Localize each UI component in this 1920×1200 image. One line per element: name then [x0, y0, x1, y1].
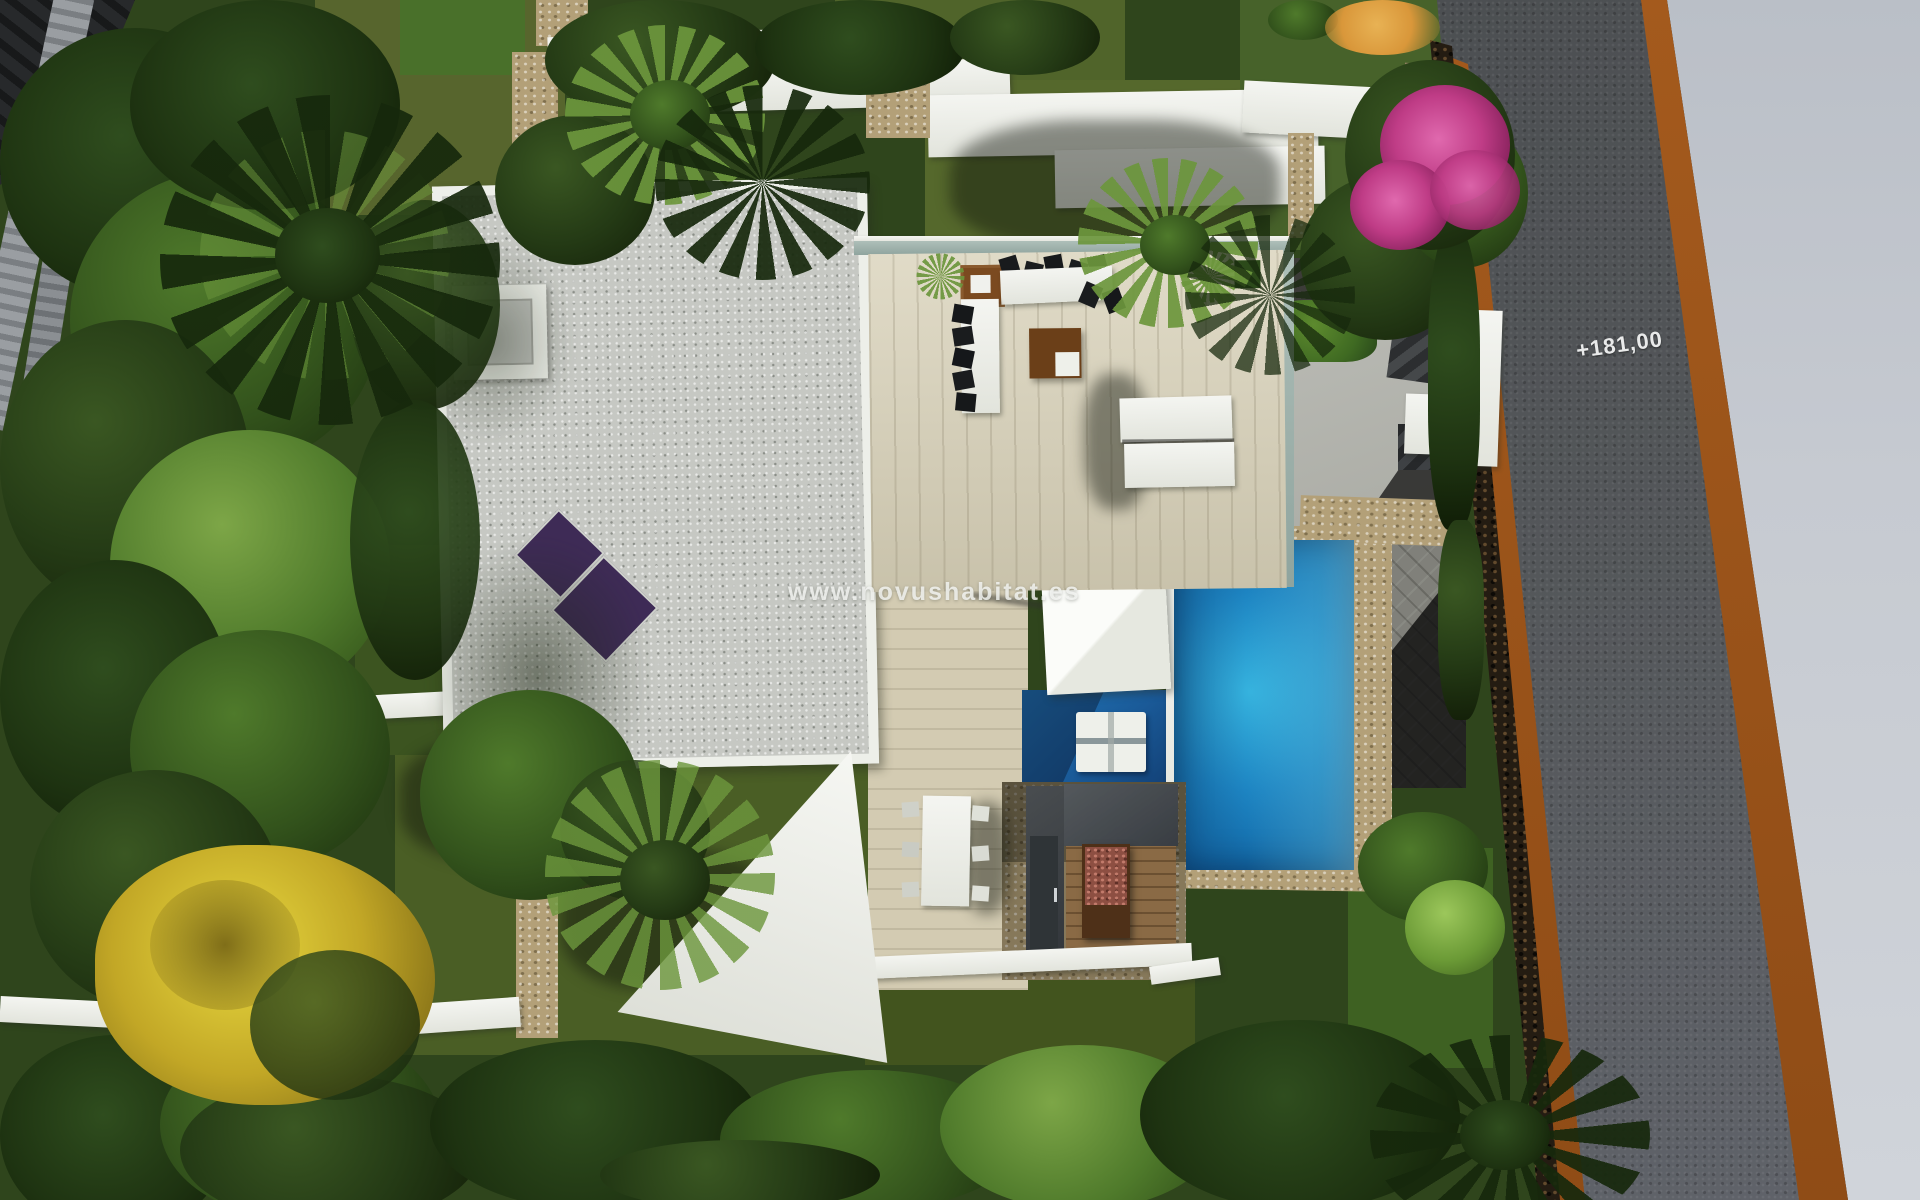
garden-palm-crown: [620, 840, 710, 920]
roadside-hedge: [1438, 520, 1484, 720]
pool-light-band: [1174, 540, 1354, 870]
yucca-plant: [655, 85, 870, 280]
palm-tree-crown: [1460, 1100, 1550, 1170]
orange-flowers: [1325, 0, 1440, 55]
palm-tree-crown: [275, 208, 380, 303]
tree: [250, 950, 420, 1100]
kitchen-counter: [1064, 784, 1178, 846]
dining-table: [921, 796, 971, 907]
lawn-top-left-bright: [400, 0, 525, 75]
bench-cushion: [955, 392, 977, 412]
bench-cushion: [952, 370, 975, 391]
tree: [755, 0, 965, 95]
bbq-top: [1085, 847, 1127, 905]
dining-chair: [971, 845, 989, 861]
dining-chair: [902, 882, 920, 898]
kitchen-door: [1030, 836, 1058, 952]
outdoor-sofa: [1124, 442, 1235, 488]
swimming-pool: [1174, 540, 1354, 870]
dining-chair: [971, 805, 989, 821]
bougainvillea-flowers: [1430, 150, 1520, 230]
outdoor-sofa: [1119, 395, 1232, 442]
lounger-gap: [1108, 712, 1114, 772]
fire-table-top: [970, 275, 990, 293]
coffee-table-tray: [1055, 352, 1079, 376]
dining-chair: [971, 885, 989, 901]
pool-towel-loungers: [1076, 712, 1146, 772]
bench-cushion: [952, 326, 974, 347]
potted-palm: [916, 253, 964, 300]
tree: [350, 400, 480, 680]
bench-cushion: [952, 304, 975, 325]
bench-cushion: [952, 347, 975, 369]
tree: [950, 0, 1100, 75]
dining-chair: [902, 842, 920, 858]
dining-chair: [901, 801, 919, 817]
door-handle: [1054, 888, 1057, 902]
yucca-plant: [1185, 215, 1355, 375]
bbq-island: [1082, 844, 1130, 938]
watermark: www.novushabitat.es: [788, 578, 1081, 607]
aerial-villa-render: +181,00: [0, 0, 1920, 1200]
roadside-hedge: [1428, 230, 1480, 530]
bush: [1405, 880, 1505, 975]
